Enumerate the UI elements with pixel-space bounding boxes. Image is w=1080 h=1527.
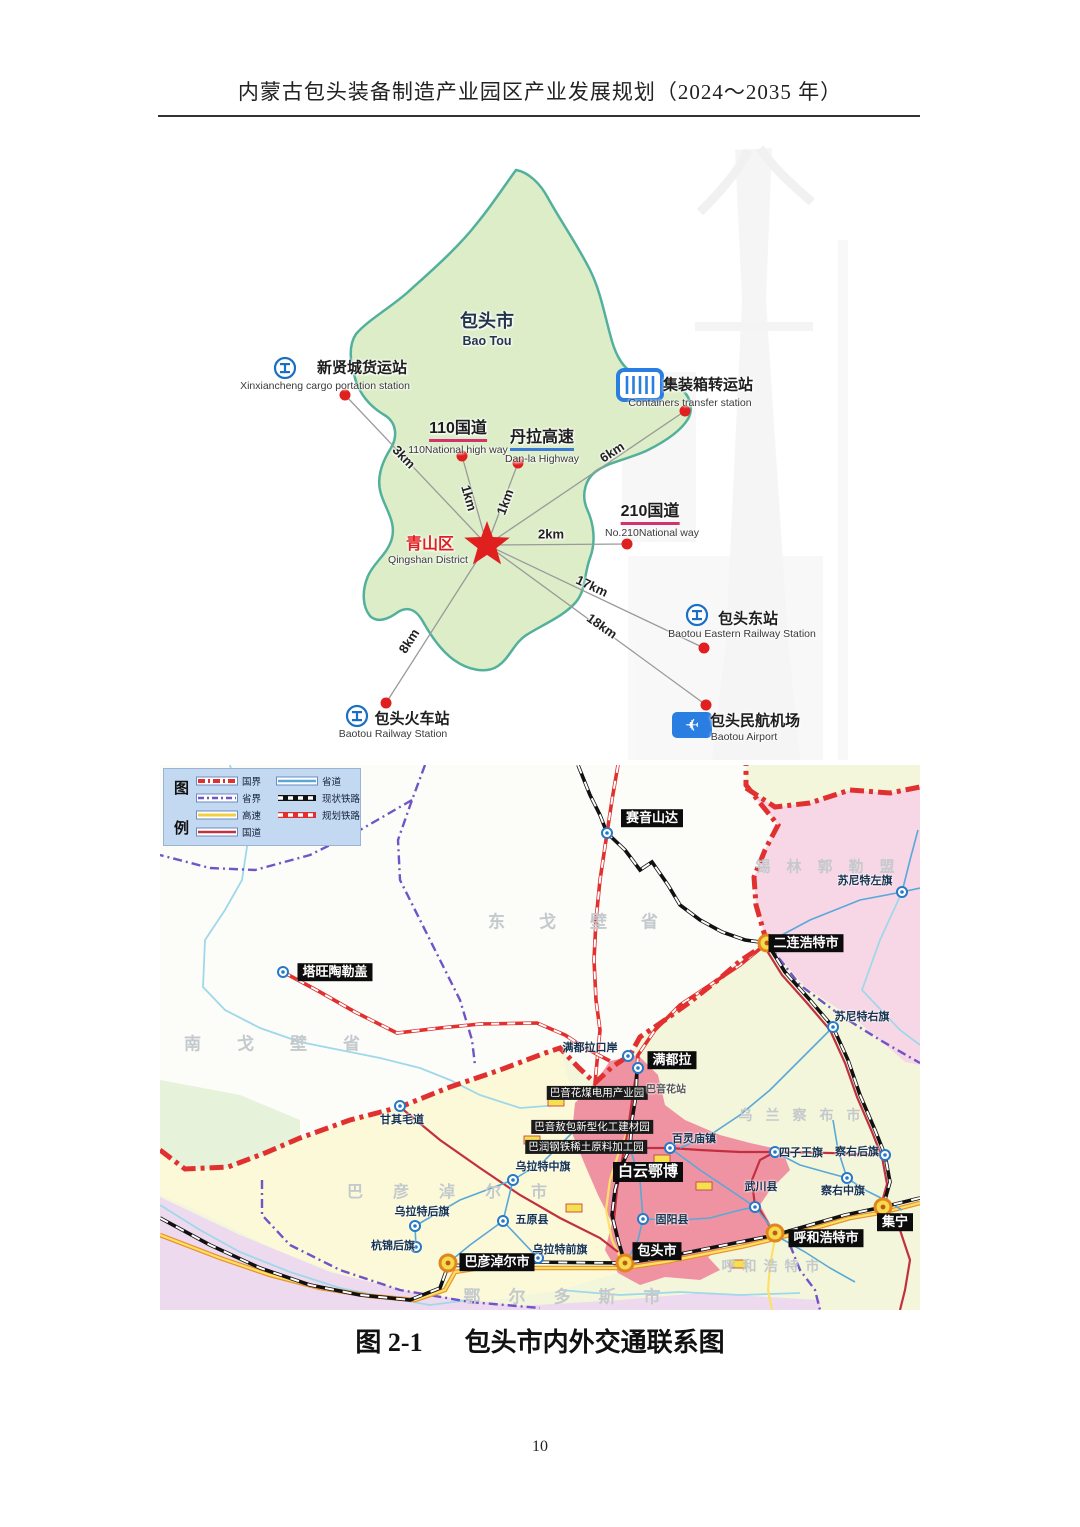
rail-station-label-en: Baotou Railway Station: [339, 728, 448, 740]
map-legend: 图 例 国界 省界 高速 国道 省道 现状铁路 规划铁路: [163, 768, 361, 846]
cargo-station-label-zh: 新贤城货运站: [317, 357, 407, 378]
railway-icon: [687, 605, 707, 625]
region-label-ordos: 鄂尔多斯市: [464, 1283, 689, 1308]
legend-item-national-road: 国道: [196, 825, 261, 839]
document-page: 内蒙古包头装备制造产业园区产业发展规划（2024～2035 年）: [0, 0, 1080, 1527]
park-box-bayinaobao: 巴音敖包新型化工建材园: [531, 1120, 653, 1134]
region-label-hohhot: 呼和浩特市: [722, 1256, 827, 1276]
town-label-urad-rear: 乌拉特后旗: [395, 1203, 450, 1219]
g210-road-label-en: No.210National way: [605, 527, 699, 539]
g210-road-label-zh: 210国道: [621, 497, 680, 525]
danla-highway-label-zh: 丹拉高速: [510, 423, 574, 451]
legend-item-national-border: 国界: [196, 774, 261, 788]
railway-icon: [275, 358, 295, 378]
town-label-wuyuan: 五原县: [516, 1211, 549, 1227]
east-station-label-zh: 包头东站: [718, 608, 778, 629]
baotou-city-label-zh: 包头市: [460, 307, 514, 333]
qingshan-district-label-en: Qingshan District: [388, 554, 468, 566]
legend-item-existing-railway: 现状铁路: [276, 791, 360, 805]
region-label-ulanqab: 乌兰察布市: [739, 1105, 874, 1125]
town-label-bayinhua-station: 巴音花站: [646, 1081, 686, 1096]
distance-2km: 2km: [538, 527, 564, 542]
hub-box-hohhot: 呼和浩特市: [788, 1229, 863, 1247]
rail-station-label-zh: 包头火车站: [374, 708, 449, 729]
airport-label-zh: 包头民航机场: [710, 710, 800, 731]
legend-item-expressway: 高速: [196, 808, 261, 822]
hub-box-erenhot: 二连浩特市: [768, 934, 843, 952]
figure-caption: 图 2-1包头市内外交通联系图: [0, 1322, 1080, 1359]
figure-number: 图 2-1: [355, 1328, 422, 1357]
legend-item-province-border: 省界: [196, 791, 261, 805]
town-label-urad-mid: 乌拉特中旗: [516, 1158, 571, 1174]
city-box-sainshand: 赛音山达: [621, 809, 683, 827]
town-label-chayou-mid: 察右中旗: [821, 1182, 865, 1198]
cargo-station-label-en: Xinxiancheng cargo portation station: [240, 380, 410, 392]
town-label-siziwang: 四子王旗: [779, 1144, 823, 1160]
park-box-bayinhua: 巴音花煤电用产业园: [547, 1086, 648, 1100]
page-number: 10: [0, 1438, 1080, 1456]
baotou-city-label-en: Bao Tou: [462, 334, 511, 348]
city-box-mandula: 满都拉: [647, 1051, 696, 1069]
legend-title-char-1: 图: [174, 777, 189, 798]
town-label-wuchuan: 武川县: [745, 1178, 778, 1194]
city-box-tavantolgoi: 塔旺陶勒盖: [297, 963, 372, 981]
danla-highway-label-en: Dan-la Highway: [505, 453, 579, 465]
town-label-hangjin-rear: 杭锦后旗: [371, 1237, 415, 1253]
town-label-chayou-rear: 察右后旗: [835, 1143, 879, 1159]
airport-icon: ✈: [672, 712, 712, 738]
east-station-label-en: Baotou Eastern Railway Station: [668, 628, 816, 640]
railway-icon: [347, 706, 367, 726]
hub-box-jining: 集宁: [877, 1213, 913, 1231]
hub-box-bayannur: 巴彦淖尔市: [459, 1253, 534, 1271]
town-label-bailingmiao: 百灵庙镇: [672, 1130, 716, 1146]
airport-label-en: Baotou Airport: [711, 731, 778, 743]
city-box-baiyunebo: 白云鄂博: [613, 1162, 683, 1182]
region-label-nan-gobi: 南戈壁省: [184, 1030, 396, 1055]
g110-road-label-zh: 110国道: [429, 414, 487, 442]
g110-road-label-en: 110National high way: [408, 444, 508, 456]
qingshan-district-label-zh: 青山区: [406, 530, 454, 554]
container-icon: [618, 370, 662, 400]
town-label-urad-front: 乌拉特前旗: [533, 1241, 588, 1257]
legend-item-province-road: 省道: [276, 774, 341, 788]
container-station-label-zh: 集装箱转运站: [663, 374, 753, 395]
svg-text:✈: ✈: [685, 716, 699, 735]
container-station-label-en: Containers transfer station: [628, 397, 751, 409]
town-label-sonid-right: 苏尼特右旗: [835, 1008, 890, 1024]
region-label-dong-gobi: 东戈壁省: [488, 908, 692, 933]
town-label-guyang: 固阳县: [656, 1211, 689, 1227]
town-label-mandula-port: 满都拉口岸: [563, 1039, 618, 1055]
figure-title: 包头市内外交通联系图: [465, 1328, 725, 1357]
legend-item-planned-railway: 规划铁路: [276, 808, 360, 822]
legend-title-char-2: 例: [174, 817, 189, 838]
region-label-bayannur: 巴彦淖尔市: [347, 1178, 577, 1202]
town-label-ganq imaodao: 甘其毛道: [380, 1111, 424, 1127]
park-box-barun: 巴润钢铁稀土原料加工园: [525, 1140, 647, 1154]
town-label-sonid-left: 苏尼特左旗: [838, 872, 893, 888]
hub-box-baotou: 包头市: [632, 1242, 681, 1260]
